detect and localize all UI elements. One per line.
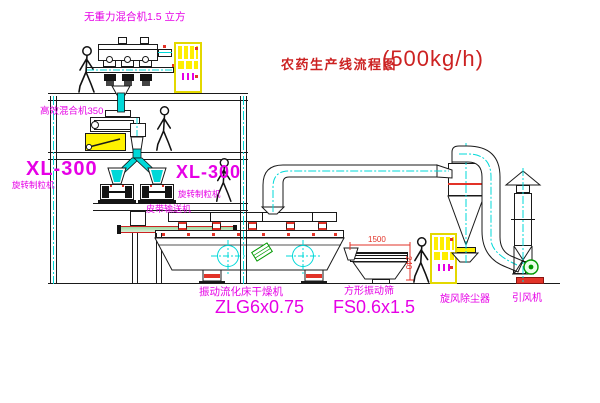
granulator-funnels <box>108 168 166 184</box>
label-screen-name: 方形振动筛 <box>344 287 394 297</box>
label-dryer-name: 振动流化床干燥机 <box>199 287 283 298</box>
label-belt-conveyor: 皮带输送机 <box>146 205 191 214</box>
label-second-mixer: 高效混合机350 <box>40 107 103 117</box>
mixer350-details <box>86 118 143 150</box>
diagram-title-capacity: (500kg/h) <box>382 46 484 72</box>
label-granulator-right-model: XL-300 <box>176 163 241 181</box>
flow-diagram-canvas: 农药生产线流程图 (500kg/h) 无重力混合机1.5 立方 高效混合机350… <box>0 0 600 403</box>
induced-draft-fan <box>524 260 538 274</box>
person-figure <box>79 47 94 92</box>
person-figure <box>414 238 429 282</box>
diagram-title: 农药生产线流程图 <box>281 54 397 73</box>
vibrating-screen-body <box>344 248 407 279</box>
dryer-body <box>155 238 344 274</box>
label-dryer-model: ZLG6x0.75 <box>215 298 304 316</box>
label-granulator-left-name: 旋转制粒机 <box>12 181 55 190</box>
dimension-screen-length: 1500 <box>368 236 386 244</box>
duct-dryer-to-cyclone <box>262 165 452 214</box>
label-granulator-left-model: XL-300 <box>26 159 98 179</box>
dimension-screen-height: 240 <box>404 256 412 269</box>
label-top-mixer: 无重力混合机1.5 立方 <box>84 12 186 23</box>
label-granulator-right-name: 旋转制粒机 <box>178 190 221 199</box>
person-figure <box>157 107 171 150</box>
label-fan: 引风机 <box>512 294 542 304</box>
label-cyclone: 旋风除尘器 <box>440 295 490 305</box>
dryer-feet <box>199 270 327 284</box>
label-screen-model: FS0.6x1.5 <box>333 298 415 316</box>
